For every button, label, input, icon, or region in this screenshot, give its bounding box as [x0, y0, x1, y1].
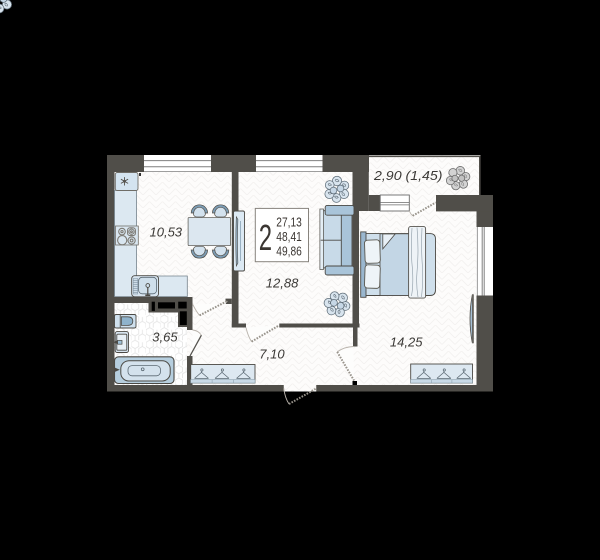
svg-text:2,90 (1,45): 2,90 (1,45): [373, 168, 443, 183]
svg-text:27,13: 27,13: [276, 215, 302, 230]
svg-text:3,65: 3,65: [152, 329, 178, 344]
svg-text:10,53: 10,53: [150, 225, 183, 240]
svg-text:12,88: 12,88: [266, 276, 299, 291]
svg-text:14,25: 14,25: [390, 335, 423, 350]
svg-text:7,10: 7,10: [259, 347, 285, 362]
svg-text:49,86: 49,86: [276, 243, 302, 258]
svg-text:2: 2: [259, 217, 272, 258]
svg-text:48,41: 48,41: [276, 229, 302, 244]
